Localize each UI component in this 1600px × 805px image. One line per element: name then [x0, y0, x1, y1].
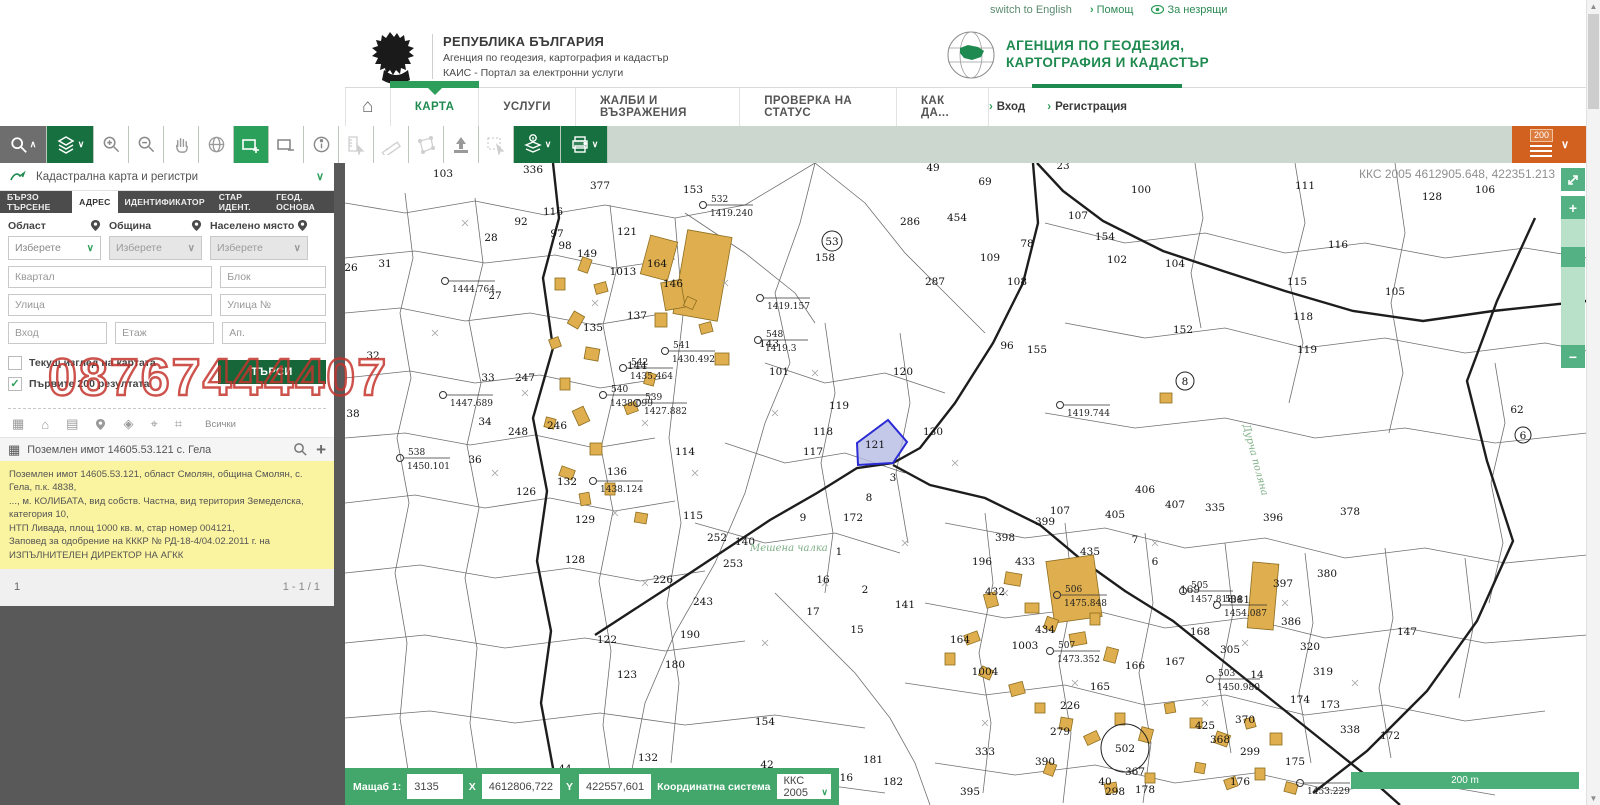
parcel-number: 98 [558, 240, 571, 252]
parcel-number: 279 [1050, 726, 1070, 738]
survey-point-elevation: 1419.240 [710, 209, 753, 219]
result-title: Поземлен имот 14605.53.121 с. Гела [27, 444, 211, 456]
parcel-number: 26 [345, 262, 358, 274]
parcel-number: 116 [1328, 239, 1348, 251]
parcel-number: 181 [863, 754, 883, 766]
building [1103, 647, 1118, 664]
pin-icon [297, 219, 308, 232]
building [655, 313, 667, 327]
address-form: Област Изберете∨ Община Изберете∨ Населе… [0, 213, 334, 354]
map-scale-bar: 200 m [1351, 772, 1579, 789]
chevron-icon: › [989, 101, 993, 113]
circled-marker-label: 502 [1115, 743, 1135, 755]
caret-down-icon: ∨ [1561, 138, 1569, 151]
caret-down-icon: ∨ [592, 139, 599, 150]
parcel-number: 92 [514, 216, 527, 228]
page-range: 1 - 1 / 1 [283, 581, 320, 593]
scale-input[interactable]: 3135 [407, 774, 462, 799]
parcel-number: 121 [617, 226, 637, 238]
building-filter-icon[interactable]: ▤ [66, 416, 78, 432]
pin-icon [90, 219, 101, 232]
parcel-boundary [345, 495, 675, 511]
scale-label: Мащаб 1: [353, 781, 401, 793]
parcel-number: 7 [1132, 534, 1139, 546]
survey-point-number: 548 [766, 330, 783, 340]
building [945, 653, 955, 665]
results-limit-dropdown[interactable]: 200 ∨ [1512, 126, 1587, 163]
parcel-number: 109 [980, 252, 1000, 264]
parcel-boundary [345, 433, 655, 448]
parcel-number: 168 [1190, 626, 1210, 638]
zoom-in-icon [102, 135, 121, 154]
parcel-number: 119 [1297, 344, 1317, 356]
info-icon [312, 135, 331, 154]
parcel-number: 1013 [610, 266, 637, 278]
top-utility-bar: switch to English ›Помощ За незрящи [0, 0, 1587, 22]
survey-point [700, 202, 707, 209]
parcel-number: 100 [1131, 184, 1151, 196]
parcel-number: 435 [1080, 546, 1100, 558]
parcel-number: 386 [1281, 616, 1301, 628]
first-200-checkbox[interactable]: ✓Първите 200 резултата [8, 377, 218, 391]
globe-icon [207, 135, 226, 154]
parcel-number: 247 [515, 372, 535, 384]
survey-point-elevation: 1453.229 [1307, 787, 1350, 797]
parcel-number: 106 [1475, 184, 1495, 196]
parcel-number: 252 [707, 532, 727, 544]
parcel-number: 173 [1320, 699, 1340, 711]
y-input[interactable]: 422557,601 [579, 774, 651, 799]
building [555, 278, 565, 290]
layers-tool-button[interactable]: ∨ [47, 126, 94, 163]
caret-down-icon: ∨ [545, 139, 552, 150]
survey-point [620, 365, 627, 372]
survey-point-elevation: 1450.980 [1217, 683, 1260, 693]
survey-cross [432, 330, 438, 336]
polygon-icon [416, 135, 436, 155]
parcel-number: 103 [433, 168, 453, 180]
survey-point-elevation: 1419.3 [765, 344, 797, 354]
parcel-number: 6 [1152, 556, 1159, 568]
parcel-number: 243 [693, 596, 713, 608]
panel-header[interactable]: Кадастрална карта и регистри ∨ [0, 163, 334, 191]
map-status-bar: Мащаб 1: 3135 X 4612806,722 Y 422557,601… [345, 768, 839, 805]
parcel-number: 1 [836, 546, 843, 558]
building [1004, 572, 1022, 587]
current-view-checkbox[interactable]: Текущ изглед на картата [8, 356, 218, 370]
parcel-number: 17 [806, 606, 819, 618]
x-input[interactable]: 4612806,722 [482, 774, 560, 799]
parcel-boundary [765, 363, 945, 393]
parcel-number: 132 [557, 476, 577, 488]
fullscreen-icon [1566, 173, 1580, 187]
switch-language-link[interactable]: switch to English [990, 4, 1072, 16]
ulitsa-no-input[interactable]: Улица № [220, 294, 326, 316]
parcel-number: 333 [975, 746, 995, 758]
zoom-slider-thumb[interactable] [1561, 247, 1585, 267]
parcel-number: 128 [1422, 191, 1442, 203]
locate-result-icon[interactable] [293, 442, 308, 457]
parcel-number: 96 [1000, 340, 1014, 352]
parcel-number: 335 [1205, 502, 1225, 514]
parcel-number: 9 [800, 512, 807, 524]
building [1164, 702, 1176, 714]
parcel-boundary [1065, 323, 1587, 353]
ap-input[interactable]: Ап. [222, 322, 326, 344]
building [1270, 733, 1282, 745]
parcel-number: 1003 [1012, 640, 1039, 652]
building [1160, 393, 1172, 403]
parcel-number: 102 [1107, 254, 1127, 266]
polygon-area-button[interactable] [409, 126, 444, 163]
parcel-number: 69 [978, 176, 991, 188]
building [1009, 681, 1026, 696]
result-filter-icons: ▦ ⌂ ▤ ◈ ⌖ ⌗ Всички [0, 411, 334, 437]
parcel-number: 141 [895, 599, 915, 611]
parcel-number: 36 [468, 454, 482, 466]
zoom-slider-track[interactable] [1561, 219, 1585, 345]
parcel-number: 117 [803, 446, 823, 458]
parcel-number: 178 [1135, 784, 1155, 796]
survey-point-number: 503 [1218, 669, 1235, 679]
parcel-number: 370 [1235, 714, 1255, 726]
full-extent-button[interactable] [199, 126, 234, 163]
add-result-icon[interactable]: + [316, 441, 326, 458]
parcel-boundary [1045, 223, 1587, 258]
nav-tab-uslugi[interactable]: УСЛУГИ [479, 88, 576, 126]
survey-point-number: 538 [408, 448, 425, 458]
parcel-number: 405 [1105, 509, 1125, 521]
page-scrollbar[interactable]: ▲ ▼ [1586, 0, 1600, 805]
scroll-thumb[interactable] [1588, 14, 1599, 109]
parcel-number: 132 [638, 752, 658, 764]
parcel-number: 107 [1068, 210, 1088, 222]
parcel-number: 167 [1165, 656, 1185, 668]
cursor-coordinates: ККС 2005 4612905.648, 422351.213 [1359, 167, 1555, 181]
measure-select-button[interactable] [339, 126, 374, 163]
survey-point-number: 507 [1058, 641, 1075, 651]
measure-cursor-icon [346, 135, 366, 155]
survey-point-number: 541 [673, 341, 690, 351]
search-tabs: БЪРЗО ТЪРСЕНЕ АДРЕС ИДЕНТИФИКАТОР СТАР И… [0, 191, 334, 213]
parcel-number: 425 [1195, 720, 1215, 732]
survey-point-elevation: 1438.124 [600, 485, 643, 495]
survey-point-elevation: 1419.744 [1067, 409, 1110, 419]
obshtina-select[interactable]: Изберете∨ [109, 236, 202, 260]
survey-cross [762, 640, 768, 646]
parcel-number: 3 [890, 472, 897, 484]
search-icon [10, 136, 28, 154]
survey-point-elevation: 1427.882 [644, 407, 687, 417]
hand-icon [172, 135, 191, 154]
survey-cross [492, 470, 498, 476]
parcel-number: 154 [755, 716, 775, 728]
building [590, 443, 602, 455]
pan-button[interactable] [164, 126, 199, 163]
survey-point-number: 540 [611, 385, 628, 395]
tab-address[interactable]: АДРЕС [72, 191, 117, 213]
upload-icon [451, 135, 471, 155]
parcel-number: 166 [1125, 660, 1145, 672]
y-label: Y [566, 781, 573, 793]
header-text: РЕПУБЛИКА БЪЛГАРИЯ Агенция по геодезия, … [432, 34, 668, 79]
building [572, 406, 590, 426]
parcel-number: 33 [481, 372, 494, 384]
parcel-number: 155 [1027, 344, 1047, 356]
zoom-rect-in-button[interactable] [234, 126, 269, 163]
sidebar: Кадастрална карта и регистри ∨ БЪРЗО ТЪР… [0, 163, 345, 805]
parcel-number: 149 [577, 248, 597, 260]
parcel-number: 118 [813, 426, 833, 438]
building [1255, 768, 1265, 780]
parcel-boundary [1045, 413, 1587, 443]
upload-button[interactable] [444, 126, 479, 163]
survey-point [757, 295, 764, 302]
ruler-button[interactable] [374, 126, 409, 163]
fullscreen-button[interactable] [1561, 168, 1585, 191]
map-toolbar: ∧ ∨ ∨ ∨ [0, 126, 1587, 164]
parcel-number: 397 [1273, 578, 1293, 590]
survey-cross [1072, 680, 1078, 686]
x-label: X [469, 781, 476, 793]
building [715, 353, 729, 365]
circled-marker-label: 53 [825, 236, 838, 248]
globe-logo-icon [946, 30, 996, 80]
parcel-number: 62 [1510, 404, 1523, 416]
parcel-number: 180 [665, 659, 685, 671]
ulitsa-input[interactable]: Улица [8, 294, 212, 316]
parcel-number: 120 [893, 366, 913, 378]
parcel-number: 108 [1007, 276, 1027, 288]
agency-logo: АГЕНЦИЯ ПО ГЕОДЕЗИЯ, КАРТОГРАФИЯ И КАДАС… [946, 30, 1209, 80]
parcel-number: 114 [675, 446, 695, 458]
zoom-in-button[interactable] [94, 126, 129, 163]
result-detail-box: Поземлен имот 14605.53.121, област Смоля… [0, 461, 334, 569]
survey-cross [1242, 640, 1248, 646]
rect-zoom-in-icon [241, 135, 261, 155]
parcel-number: 380 [1317, 568, 1337, 580]
vhod-input[interactable]: Вход [8, 322, 107, 344]
survey-point-elevation: 1450.101 [407, 462, 450, 472]
nav-tab-kak-da[interactable]: КАК ДА... [897, 88, 989, 126]
parcel-number: 23 [1056, 163, 1069, 172]
nav-tab-zhalbi[interactable]: ЖАЛБИ И ВЪЗРАЖЕНИЯ [576, 88, 740, 126]
survey-point-elevation: 1444.764 [452, 285, 495, 295]
parcel-number: 119 [829, 400, 849, 412]
etazh-input[interactable]: Етаж [115, 322, 214, 344]
locality-name: Дурча поляна [1240, 422, 1270, 497]
agency-logo-text: АГЕНЦИЯ ПО ГЕОДЕЗИЯ, КАРТОГРАФИЯ И КАДАС… [1006, 38, 1209, 72]
accessibility-link[interactable]: За незрящи [1151, 4, 1227, 16]
layers-filter-icon[interactable]: ◈ [123, 416, 133, 432]
parcel-number: 246 [547, 420, 567, 432]
tab-quick-search[interactable]: БЪРЗО ТЪРСЕНЕ [0, 191, 72, 213]
zoom-slider-plus[interactable]: + [1561, 196, 1585, 219]
oblast-select[interactable]: Изберете∨ [8, 236, 101, 260]
page-number[interactable]: 1 [14, 581, 20, 593]
survey-point [1057, 402, 1064, 409]
parcel-number: 338 [1340, 724, 1360, 736]
building [1194, 762, 1206, 774]
parcel-number: 34 [478, 416, 492, 428]
header: РЕПУБЛИКА БЪЛГАРИЯ Агенция по геодезия, … [0, 22, 1587, 88]
survey-point [440, 392, 447, 399]
survey-point-elevation: 1454.087 [1224, 609, 1267, 619]
home-icon: ⌂ [362, 96, 374, 118]
parcel-number: 319 [1313, 666, 1333, 678]
parcel-number: 16 [816, 574, 830, 586]
building [584, 347, 600, 361]
parcel-number: 101 [769, 366, 789, 378]
kvartal-input[interactable]: Квартал [8, 266, 212, 288]
parcel-number: 1004 [972, 666, 999, 678]
result-row[interactable]: ▦ Поземлен имот 14605.53.121 с. Гела + [0, 437, 334, 461]
survey-cross [522, 390, 528, 396]
survey-point-elevation: 1473.352 [1057, 655, 1100, 665]
search-tool-button[interactable]: ∧ [0, 126, 47, 163]
blok-input[interactable]: Блок [220, 266, 326, 288]
nav-tab-proverka[interactable]: ПРОВЕРКА НА СТАТУС [740, 88, 897, 126]
layers-info-button[interactable]: ∨ [514, 126, 561, 163]
building [1284, 782, 1298, 795]
parcel-number: 28 [484, 232, 497, 244]
parcel-number: 396 [1263, 512, 1283, 524]
parcel-number: 182 [883, 776, 903, 788]
parcel-number: 123 [617, 669, 637, 681]
parcel-number: 286 [900, 216, 920, 228]
survey-cross [1352, 680, 1358, 686]
parcel-boundary [345, 565, 705, 581]
parcel-number: 115 [1287, 276, 1307, 288]
parcel-number: 172 [843, 512, 863, 524]
parcel-number: 454 [947, 212, 967, 224]
register-link[interactable]: ›Регистрация [1047, 101, 1127, 113]
zoom-slider: + − [1561, 196, 1585, 368]
parcel-number: 146 [663, 278, 683, 290]
survey-cross [982, 720, 988, 726]
caret-down-icon: ∨ [316, 170, 324, 183]
parcel-number: 196 [972, 556, 992, 568]
survey-point-number: 505 [1191, 581, 1208, 591]
cadastral-map[interactable]: 1211033363774969231001111281161051061169… [345, 163, 1587, 805]
parcel-number: 377 [590, 180, 610, 192]
parcel-number: 122 [597, 634, 617, 646]
building [560, 378, 570, 390]
parcel-number: 31 [378, 258, 391, 270]
tab-geod-base[interactable]: ГЕОД. ОСНОВА [269, 191, 334, 213]
zoom-out-button[interactable] [129, 126, 164, 163]
selected-parcel-label: 121 [865, 439, 885, 451]
naseleno-select[interactable]: Изберете∨ [210, 236, 308, 260]
survey-cross [642, 580, 648, 586]
parcel-number: 130 [923, 426, 943, 438]
nav-tab-karta[interactable]: КАРТА [391, 88, 479, 126]
crs-label: Координатна система [657, 781, 770, 793]
filter-all-label[interactable]: Всички [205, 419, 236, 430]
crs-select[interactable]: ККС 2005∨ [777, 774, 831, 799]
parcel-number: 105 [1385, 286, 1405, 298]
circled-marker-label: 6 [1520, 430, 1527, 442]
survey-point [662, 348, 669, 355]
parcel-number: 406 [1135, 484, 1155, 496]
parcel-number: 126 [516, 486, 536, 498]
help-link[interactable]: ›Помощ [1090, 4, 1133, 16]
search-panel: Кадастрална карта и регистри ∨ БЪРЗО ТЪР… [0, 163, 334, 606]
parcel-number: 378 [1340, 506, 1360, 518]
survey-point [1047, 648, 1054, 655]
zoom-rect-out-button[interactable] [269, 126, 304, 163]
parcel-number: 287 [925, 276, 945, 288]
parcel-number: 158 [815, 252, 835, 264]
building [1035, 703, 1045, 713]
list-icon [1530, 145, 1553, 158]
building [1145, 773, 1155, 783]
building [634, 512, 648, 524]
coat-of-arms-lion-logo [370, 30, 422, 88]
building [594, 282, 608, 295]
survey-point-number: 539 [645, 393, 662, 403]
survey-point-elevation: 1447.689 [450, 399, 493, 409]
home-filter-icon[interactable]: ⌂ [41, 417, 49, 432]
pin-icon [191, 219, 202, 232]
scroll-up-arrow[interactable]: ▲ [1587, 0, 1600, 13]
search-button[interactable]: ТЪРСИ [218, 360, 326, 384]
parcel-boundary [1389, 163, 1405, 433]
scroll-down-arrow[interactable]: ▼ [1587, 792, 1600, 805]
zoom-slider-minus[interactable]: − [1561, 345, 1585, 368]
tab-old-ident[interactable]: СТАР ИДЕНТ. [212, 191, 269, 213]
info-button[interactable] [304, 126, 339, 163]
caret-up-icon: ∧ [30, 139, 37, 150]
survey-point-elevation: 1419.157 [767, 302, 810, 312]
survey-cross [642, 420, 648, 426]
map-canvas[interactable]: 1211033363774969231001111281161051061169… [345, 163, 1587, 805]
parcel-number: 152 [1173, 324, 1193, 336]
parcel-number: 8 [866, 492, 873, 504]
pin-filter-icon[interactable] [95, 418, 106, 431]
parcel-number: 190 [680, 629, 700, 641]
survey-point-number: 506 [1065, 585, 1082, 595]
parcel-number: 399 [1035, 516, 1055, 528]
tab-identifier[interactable]: ИДЕНТИФИКАТОР [118, 191, 212, 213]
parcel-number: 153 [683, 184, 703, 196]
survey-point-elevation: 1435.464 [630, 372, 673, 382]
nav-home[interactable]: ⌂ [345, 88, 391, 126]
pagination: 1 1 - 1 / 1 [0, 569, 334, 606]
parcel-number: 165 [1090, 681, 1110, 693]
move-filter-icon[interactable]: ⌗ [175, 416, 182, 432]
zoom-out-icon [137, 135, 156, 154]
checkbox-checked: ✓ [8, 377, 22, 391]
parcel-number: 116 [543, 206, 563, 218]
select-rect-icon [486, 135, 506, 155]
parcel-number: 38 [346, 408, 359, 420]
print-button[interactable]: ∨ [561, 126, 608, 163]
chevron-icon: › [1090, 4, 1094, 16]
building [699, 322, 713, 335]
measure-filter-icon[interactable]: ⌖ [150, 416, 157, 432]
building [1247, 562, 1279, 630]
grid-filter-icon[interactable]: ▦ [12, 416, 24, 432]
parcel-number: 147 [1397, 626, 1417, 638]
survey-point [442, 278, 449, 285]
select-rect-button[interactable] [479, 126, 514, 163]
building [1084, 731, 1101, 746]
login-link[interactable]: ›Вход [989, 101, 1025, 113]
parcel-number: 32 [366, 350, 379, 362]
survey-point-number: 532 [711, 195, 728, 205]
parcel-number: 129 [575, 514, 595, 526]
